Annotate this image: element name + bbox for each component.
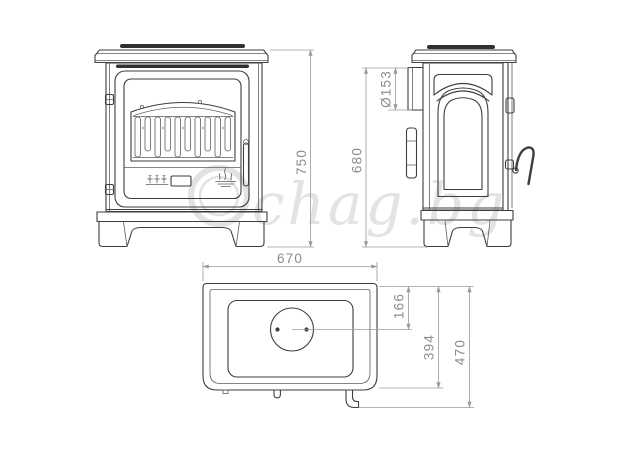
top-vent-slot xyxy=(120,44,245,48)
stove-technical-drawing: chag.bg xyxy=(0,0,624,460)
door-handle-side xyxy=(516,147,534,184)
dim-label-153: Ø153 xyxy=(379,70,394,108)
side-panel-arch xyxy=(434,84,492,96)
dim-plate-depth: 394 xyxy=(379,287,444,389)
door-inner-frame xyxy=(124,79,241,199)
upper-body-vent-slot xyxy=(116,65,249,69)
flue-collar xyxy=(408,68,423,111)
air-slider xyxy=(171,176,191,186)
top-view xyxy=(203,284,412,408)
recessed-cook-panel xyxy=(228,301,353,378)
dim-label-680: 680 xyxy=(350,147,365,173)
dim-top-width: 670 xyxy=(203,251,377,281)
bolt-left xyxy=(275,327,279,331)
pipe-elbow-inner xyxy=(353,390,359,402)
dim-flue-offset: 166 xyxy=(392,287,409,330)
air-control-levers-icon xyxy=(146,176,168,185)
dim-label-750: 750 xyxy=(294,149,309,175)
dim-label-166: 166 xyxy=(392,293,407,319)
dim-label-470: 470 xyxy=(453,339,468,365)
door-knob-plan xyxy=(274,390,280,398)
door-latch-side xyxy=(506,98,514,113)
technical-drawing-page: chag.bg xyxy=(0,0,624,460)
stove-body-front xyxy=(106,63,262,212)
side-top-vent-slot xyxy=(427,45,495,49)
dim-label-394: 394 xyxy=(422,334,437,360)
grille-bars xyxy=(135,117,231,157)
dim-overall-depth: 470 xyxy=(359,287,475,408)
dim-flue-diameter: Ø153 xyxy=(379,68,413,110)
window-frame xyxy=(131,112,235,161)
dim-label-670: 670 xyxy=(277,251,303,266)
